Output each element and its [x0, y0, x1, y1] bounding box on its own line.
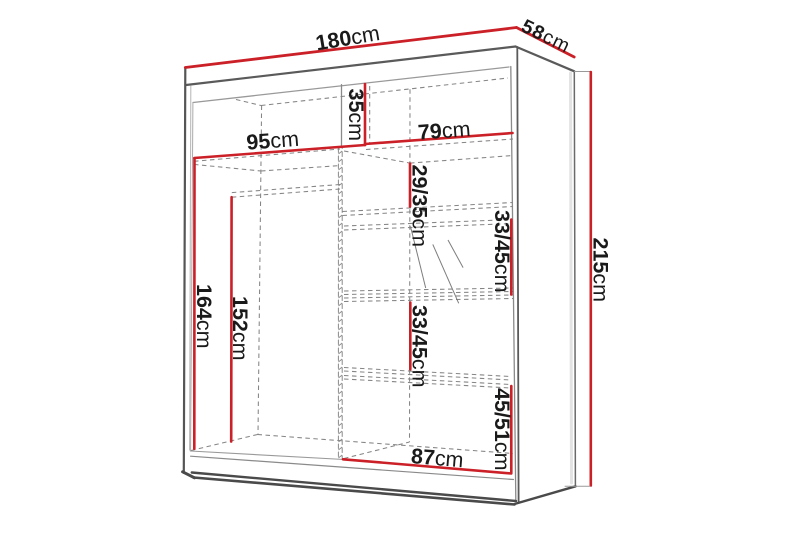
svg-text:29/35cm: 29/35cm: [408, 165, 432, 247]
svg-text:95cm: 95cm: [246, 127, 300, 155]
svg-text:87cm: 87cm: [410, 444, 464, 472]
svg-text:33/45cm: 33/45cm: [490, 210, 514, 292]
svg-text:164cm: 164cm: [192, 284, 216, 349]
svg-text:152cm: 152cm: [228, 296, 252, 361]
svg-text:35cm: 35cm: [344, 89, 368, 142]
svg-text:215cm: 215cm: [589, 238, 613, 303]
svg-text:33/45cm: 33/45cm: [408, 305, 432, 387]
svg-text:45/51cm: 45/51cm: [490, 388, 514, 470]
svg-text:79cm: 79cm: [417, 117, 471, 145]
